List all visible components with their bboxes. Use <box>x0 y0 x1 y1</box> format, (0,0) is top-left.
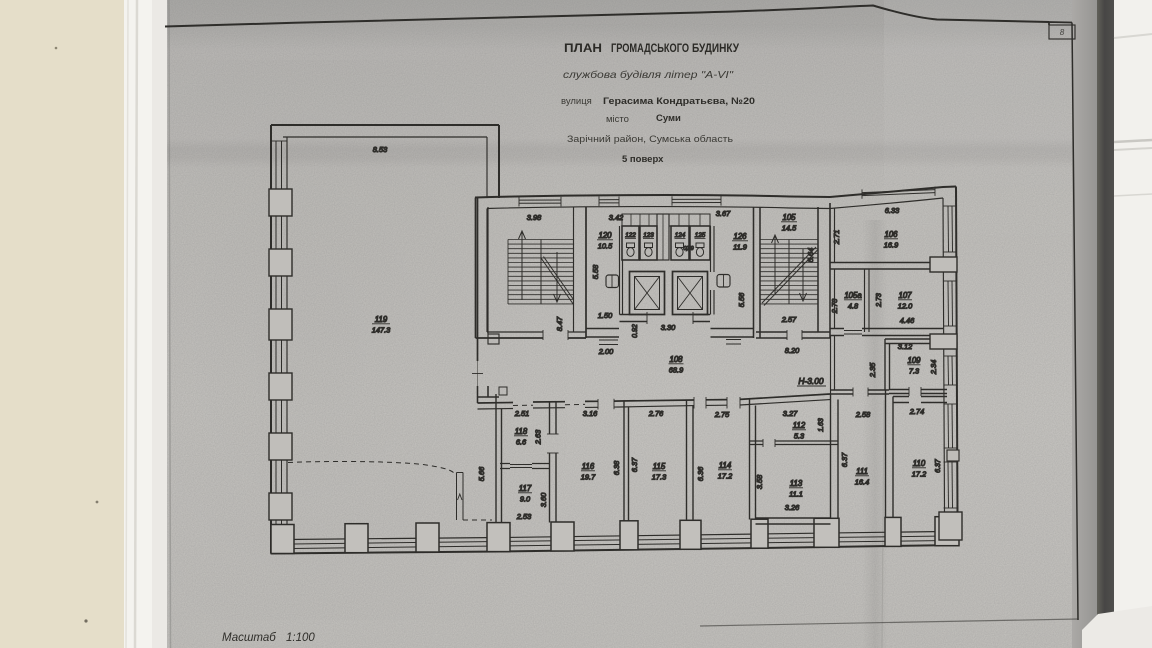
svg-text:1.50: 1.50 <box>598 311 613 320</box>
svg-text:0,8: 0,8 <box>683 246 692 252</box>
svg-text:ПЛАНГРОМАДСЬКОГОБУДИНКУ: ПЛАНГРОМАДСЬКОГОБУДИНКУ <box>564 41 739 55</box>
svg-text:5.3: 5.3 <box>794 432 805 441</box>
svg-text:2.34: 2.34 <box>929 360 938 375</box>
svg-text:2.35: 2.35 <box>868 362 877 378</box>
svg-text:Зарічний район, Сумська област: Зарічний район, Сумська область <box>567 134 733 145</box>
svg-text:6.37: 6.37 <box>630 457 639 472</box>
svg-text:16.4: 16.4 <box>855 478 869 487</box>
svg-text:19.7: 19.7 <box>581 473 596 482</box>
svg-text:12.0: 12.0 <box>898 302 913 311</box>
svg-text:11.1: 11.1 <box>789 490 803 499</box>
svg-text:місто: місто <box>606 114 629 125</box>
svg-text:3.60: 3.60 <box>539 492 548 507</box>
svg-text:Масштаб: Масштаб <box>222 632 276 644</box>
svg-text:3.42: 3.42 <box>609 213 623 222</box>
svg-text:8: 8 <box>1060 28 1065 37</box>
svg-text:108: 108 <box>669 355 683 364</box>
svg-text:9.0: 9.0 <box>520 495 531 504</box>
svg-text:4.46: 4.46 <box>900 316 915 325</box>
svg-text:147.3: 147.3 <box>372 326 391 335</box>
svg-text:1.63: 1.63 <box>818 418 825 432</box>
svg-text:5.56: 5.56 <box>737 292 746 307</box>
svg-text:122: 122 <box>625 232 636 239</box>
svg-text:3.26: 3.26 <box>785 503 800 512</box>
svg-text:6.36: 6.36 <box>696 466 705 481</box>
svg-text:3.67: 3.67 <box>716 209 731 218</box>
svg-text:16.9: 16.9 <box>884 241 898 250</box>
svg-text:110: 110 <box>913 459 926 468</box>
svg-text:3.16: 3.16 <box>583 409 598 418</box>
svg-text:0.92: 0.92 <box>632 324 639 338</box>
svg-text:Суми: Суми <box>656 113 681 124</box>
svg-text:124: 124 <box>675 232 686 239</box>
svg-text:2.74: 2.74 <box>909 407 924 416</box>
svg-text:1:100: 1:100 <box>286 632 315 644</box>
svg-text:6.33: 6.33 <box>885 206 900 215</box>
svg-text:126: 126 <box>733 232 747 241</box>
svg-text:6.37: 6.37 <box>935 458 942 473</box>
svg-text:113: 113 <box>790 479 803 488</box>
svg-text:Н-3.00: Н-3.00 <box>798 376 823 386</box>
svg-text:10.5: 10.5 <box>598 242 613 251</box>
svg-text:107: 107 <box>898 291 912 300</box>
svg-text:2.73: 2.73 <box>830 298 839 314</box>
svg-text:8.47: 8.47 <box>555 316 564 331</box>
svg-text:120: 120 <box>598 231 612 240</box>
svg-text:3.98: 3.98 <box>527 213 542 222</box>
svg-text:5 поверх: 5 поверх <box>622 154 664 165</box>
svg-text:8.53: 8.53 <box>373 145 388 154</box>
svg-text:117: 117 <box>519 484 532 493</box>
svg-text:119: 119 <box>375 315 388 324</box>
svg-text:2.58: 2.58 <box>855 410 871 419</box>
svg-text:105: 105 <box>782 213 796 222</box>
svg-text:2.63: 2.63 <box>534 429 543 445</box>
svg-text:Герасима Кондратьєва, №20: Герасима Кондратьєва, №20 <box>603 96 755 107</box>
svg-text:17.2: 17.2 <box>718 472 732 481</box>
svg-text:5.58: 5.58 <box>591 264 600 279</box>
svg-text:125: 125 <box>695 232 706 239</box>
svg-text:4.8: 4.8 <box>848 302 859 311</box>
svg-text:118: 118 <box>515 427 528 436</box>
svg-text:2.75: 2.75 <box>714 410 730 419</box>
svg-text:17.2: 17.2 <box>912 470 926 479</box>
svg-text:2.00: 2.00 <box>598 347 614 356</box>
svg-text:6.37: 6.37 <box>840 452 849 467</box>
svg-text:14.5: 14.5 <box>782 224 797 233</box>
svg-text:7.3: 7.3 <box>909 367 920 376</box>
svg-text:17.3: 17.3 <box>652 473 667 482</box>
svg-text:105а: 105а <box>844 291 862 300</box>
svg-text:3.27: 3.27 <box>783 409 798 418</box>
svg-text:106: 106 <box>884 230 898 239</box>
svg-text:вулиця: вулиця <box>561 96 592 107</box>
svg-text:8.20: 8.20 <box>785 346 800 355</box>
svg-text:112: 112 <box>793 421 806 430</box>
svg-text:6.38: 6.38 <box>612 460 621 475</box>
svg-text:5.64: 5.64 <box>806 248 815 262</box>
svg-text:115: 115 <box>653 462 666 471</box>
svg-text:3.12: 3.12 <box>898 342 912 351</box>
svg-text:2.73: 2.73 <box>876 293 883 308</box>
svg-text:2.76: 2.76 <box>648 409 664 418</box>
svg-text:службова будівля літер "А-VI": службова будівля літер "А-VI" <box>563 69 734 81</box>
svg-text:68.9: 68.9 <box>669 366 683 375</box>
svg-text:3.58: 3.58 <box>755 474 764 489</box>
svg-text:6.6: 6.6 <box>516 438 527 447</box>
svg-text:114: 114 <box>719 461 732 470</box>
svg-text:2.51: 2.51 <box>514 409 529 418</box>
svg-text:11.9: 11.9 <box>733 243 747 252</box>
svg-text:111: 111 <box>856 467 868 476</box>
svg-text:5.66: 5.66 <box>477 466 486 481</box>
svg-text:3.30: 3.30 <box>661 323 676 332</box>
svg-text:123: 123 <box>643 232 654 239</box>
svg-text:2.71: 2.71 <box>832 230 841 245</box>
svg-text:2.57: 2.57 <box>781 315 797 324</box>
svg-text:2.53: 2.53 <box>516 512 532 521</box>
svg-text:116: 116 <box>582 462 595 471</box>
svg-text:109: 109 <box>907 356 921 365</box>
